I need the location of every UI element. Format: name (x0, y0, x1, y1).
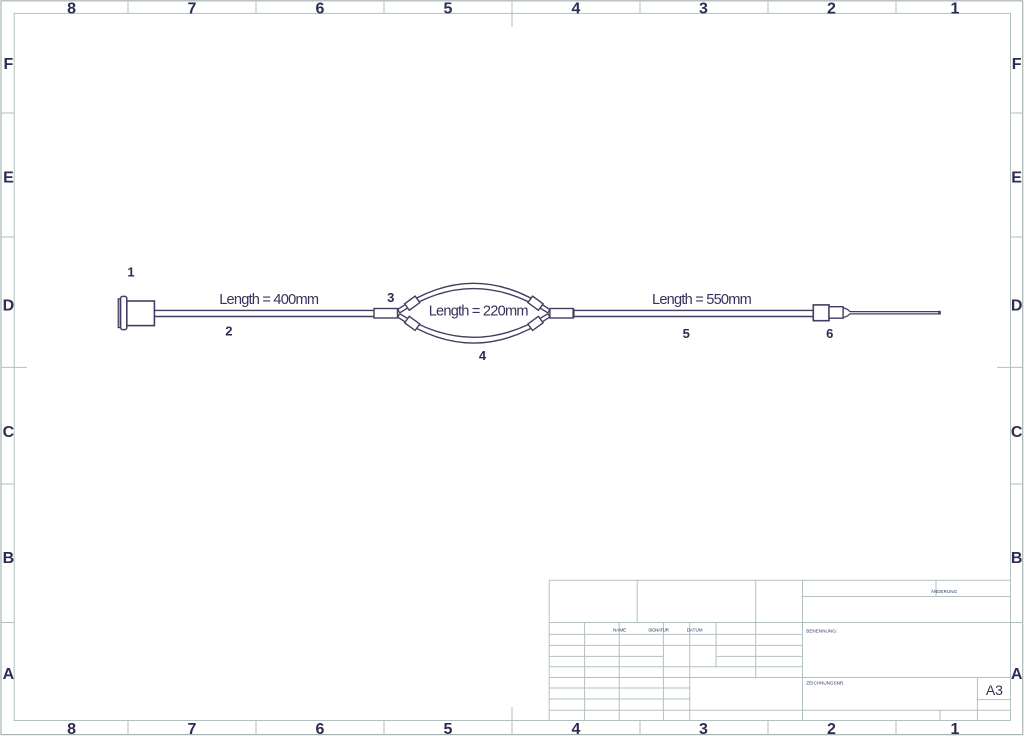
svg-text:BENENNUNG:: BENENNUNG: (806, 628, 837, 633)
svg-text:5: 5 (444, 721, 453, 736)
svg-text:2: 2 (827, 0, 836, 17)
svg-text:4: 4 (572, 721, 581, 736)
svg-text:2: 2 (225, 324, 232, 339)
svg-text:1: 1 (951, 0, 960, 17)
svg-text:4: 4 (479, 348, 487, 363)
svg-text:8: 8 (67, 721, 76, 736)
svg-text:DATUM: DATUM (687, 627, 703, 632)
svg-text:A: A (3, 666, 15, 683)
svg-text:1: 1 (951, 721, 960, 736)
svg-text:Length = 400mm: Length = 400mm (219, 292, 319, 308)
svg-text:7: 7 (188, 0, 197, 17)
svg-text:SIGNATUR: SIGNATUR (648, 627, 669, 632)
svg-text:E: E (1011, 170, 1022, 187)
svg-text:6: 6 (316, 721, 325, 736)
svg-text:ÄNDERUNG: ÄNDERUNG (931, 588, 958, 594)
svg-text:1: 1 (127, 265, 134, 280)
svg-text:7: 7 (188, 721, 197, 736)
svg-text:5: 5 (444, 0, 453, 17)
svg-text:D: D (1011, 298, 1023, 315)
svg-text:D: D (3, 298, 15, 315)
svg-text:A3: A3 (986, 682, 1003, 698)
svg-text:B: B (1011, 550, 1023, 567)
svg-text:ZEICHNUNGSNR.: ZEICHNUNGSNR. (806, 680, 844, 685)
svg-text:B: B (3, 550, 15, 567)
svg-text:C: C (1011, 424, 1023, 441)
svg-text:Length = 550mm: Length = 550mm (652, 292, 752, 308)
svg-text:5: 5 (683, 326, 690, 341)
svg-text:3: 3 (387, 290, 394, 305)
svg-text:4: 4 (572, 0, 581, 17)
svg-text:F: F (1012, 56, 1022, 73)
svg-text:3: 3 (699, 0, 708, 17)
svg-text:2: 2 (827, 721, 836, 736)
svg-text:3: 3 (699, 721, 708, 736)
svg-text:A: A (1011, 666, 1023, 683)
svg-text:NAME: NAME (613, 627, 626, 632)
svg-text:8: 8 (67, 0, 76, 17)
svg-text:E: E (3, 170, 14, 187)
svg-text:6: 6 (826, 326, 833, 341)
svg-text:Length = 220mm: Length = 220mm (429, 304, 529, 320)
svg-text:F: F (4, 56, 14, 73)
svg-text:C: C (3, 424, 15, 441)
svg-text:6: 6 (316, 0, 325, 17)
